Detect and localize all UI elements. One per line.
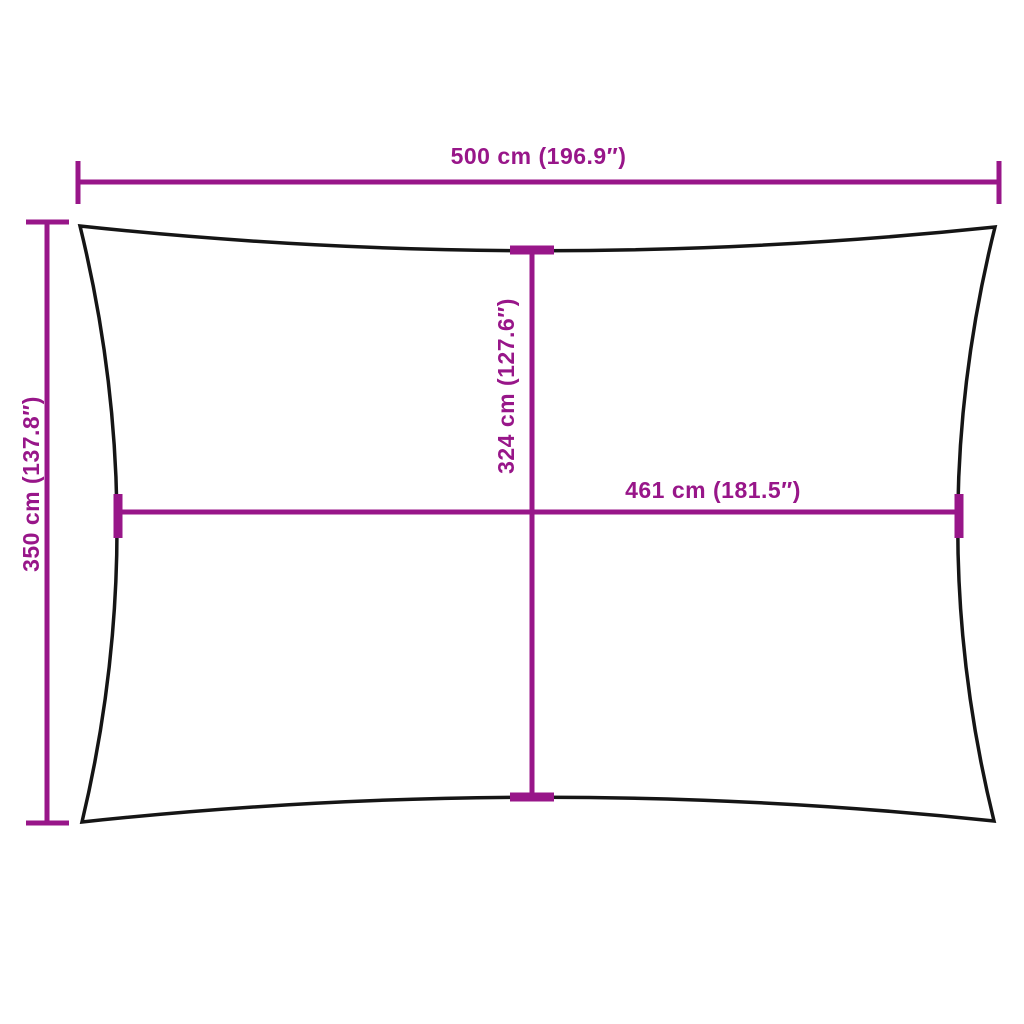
overall-height-label: 350 cm (137.8″) (17, 364, 45, 604)
shade-sail-outline (80, 226, 995, 822)
inner-height-label: 324 cm (127.6″) (492, 266, 520, 506)
overall-width-label: 500 cm (196.9″) (78, 142, 999, 170)
inner-width-label: 461 cm (181.5″) (563, 476, 863, 504)
product-dimension-diagram: 500 cm (196.9″) 350 cm (137.8″) 324 cm (… (0, 0, 1024, 1024)
